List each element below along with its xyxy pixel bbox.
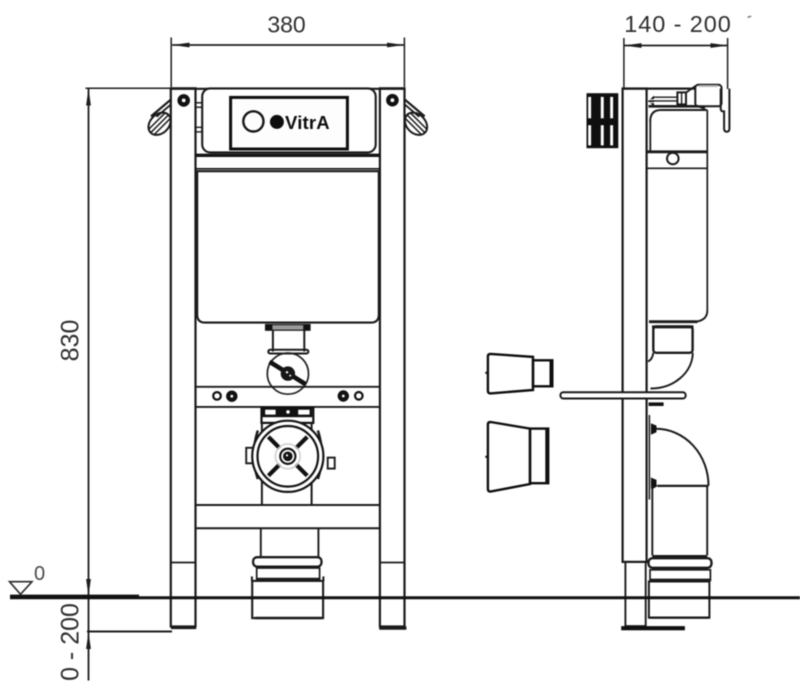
svg-text:140 - 200: 140 - 200 (624, 11, 731, 37)
svg-text:380: 380 (267, 12, 305, 38)
svg-text:830: 830 (57, 320, 85, 362)
svg-text:0 - 200: 0 - 200 (57, 603, 85, 681)
svg-text:0: 0 (34, 563, 45, 585)
svg-text:VitrA: VitrA (285, 112, 330, 133)
